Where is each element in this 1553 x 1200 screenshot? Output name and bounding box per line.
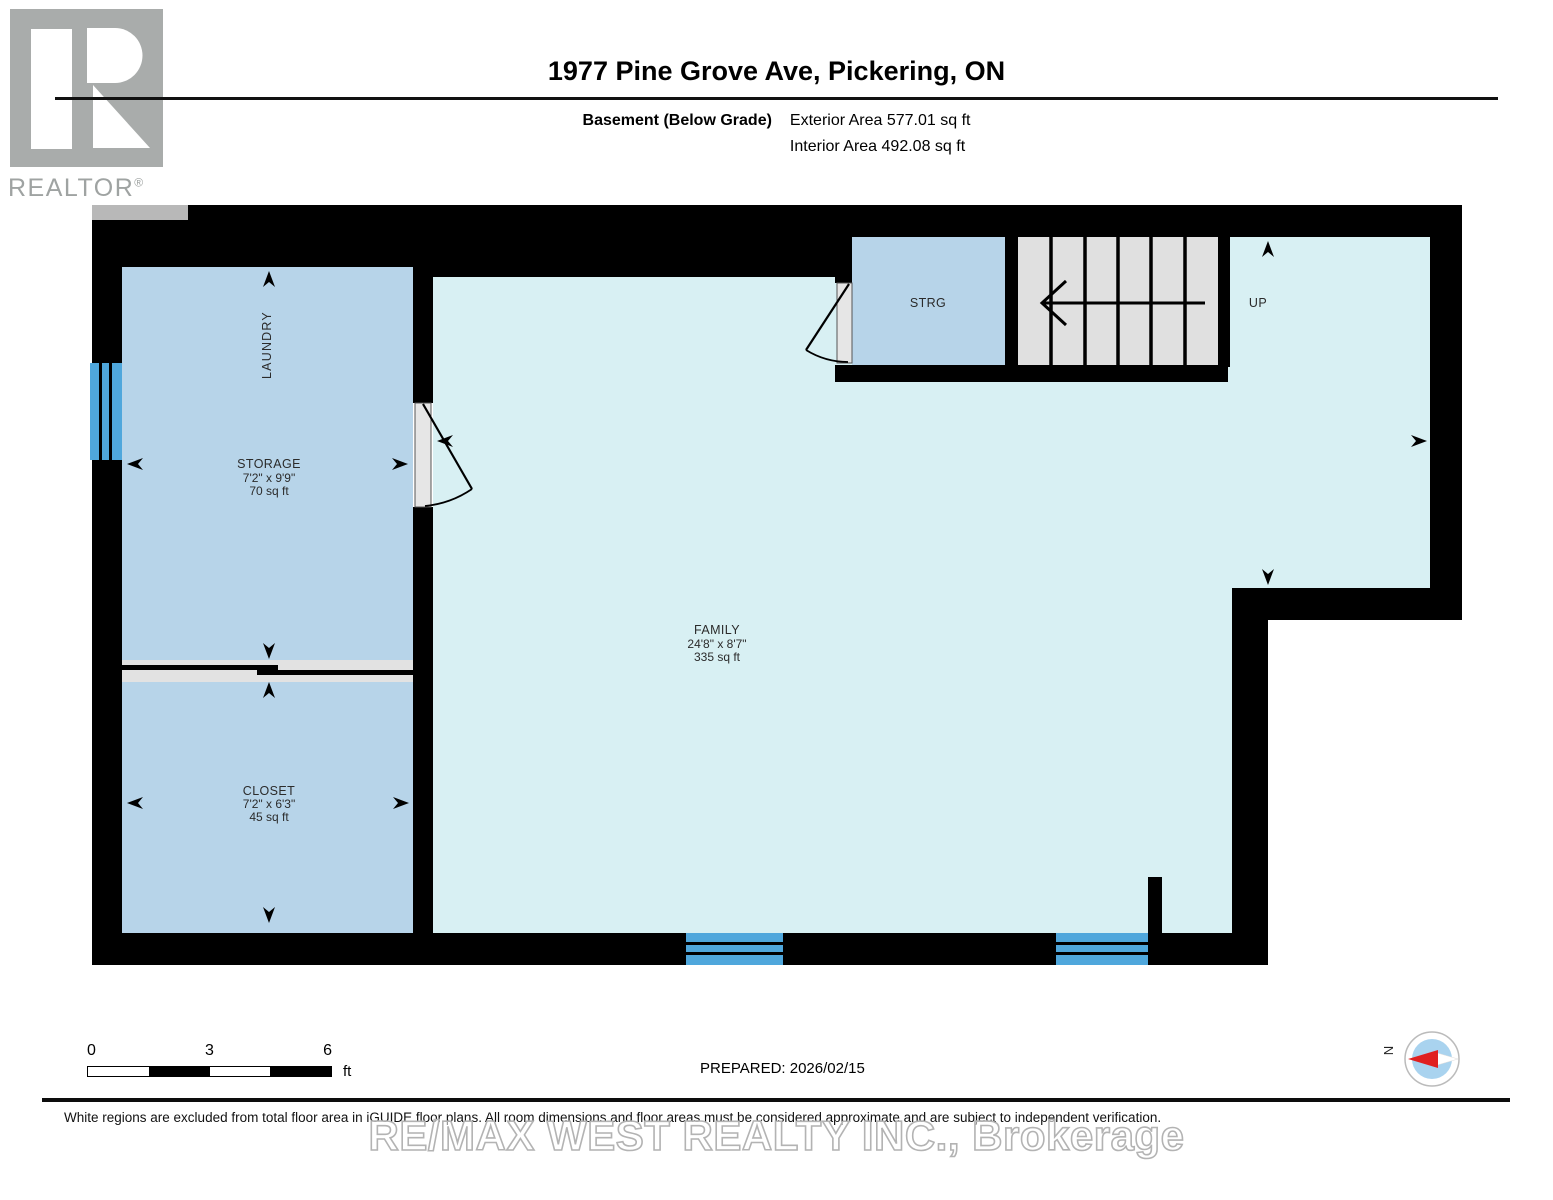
wall-right	[1430, 205, 1462, 620]
strg-room-label: STRG	[910, 296, 946, 310]
wall-inner-lower	[413, 507, 433, 933]
family-room-area: 335 sq ft	[694, 650, 741, 664]
wall-top-right	[850, 205, 1462, 237]
wall-stairs-left	[1005, 237, 1018, 367]
compass-icon	[1400, 1027, 1464, 1091]
floor-label: Basement (Below Grade)	[583, 108, 772, 160]
wall-step-vertical	[1232, 588, 1268, 965]
exterior-area-value: Exterior Area 577.01 sq ft	[790, 108, 971, 134]
family-room-label: FAMILY	[694, 623, 740, 637]
scale-tick-3: 3	[205, 1042, 214, 1060]
window-bottom-2	[1056, 933, 1148, 965]
brokerage-watermark: RE/MAX WEST REALTY INC., Brokerage	[0, 1112, 1553, 1160]
wall-inner-upper	[413, 267, 433, 403]
prepared-date: PREPARED: 2026/02/15	[700, 1060, 865, 1077]
laundry-room-label: LAUNDRY	[260, 311, 274, 379]
family-room-area-right	[1228, 237, 1430, 588]
closet-room-dimensions: 7'2" x 6'3"	[243, 797, 295, 811]
closet-room-area: 45 sq ft	[249, 810, 289, 824]
floor-summary: Basement (Below Grade) Exterior Area 577…	[0, 108, 1553, 160]
header-divider-line	[55, 97, 1498, 100]
wall-top-middle	[413, 205, 852, 277]
storage-room-dimensions: 7'2" x 9'9"	[243, 471, 295, 485]
scale-bar: 0 3 6 ft	[87, 1042, 332, 1077]
storage-room-area: 70 sq ft	[249, 484, 289, 498]
compass-north-label: N	[1381, 1046, 1396, 1055]
scale-tick-0: 0	[87, 1042, 96, 1060]
page-title: 1977 Pine Grove Ave, Pickering, ON	[0, 56, 1553, 87]
storage-room-label: STORAGE	[237, 457, 301, 471]
realtor-logo-wordmark: REALTOR®	[8, 174, 193, 203]
wall-stairs-right	[1218, 237, 1230, 367]
floorplan-page: LAUNDRY STORAGE 7'2" x 9'9" 70 sq ft CLO…	[0, 0, 1553, 1200]
scale-unit-label: ft	[343, 1063, 351, 1080]
floorplan-drawing: LAUNDRY STORAGE 7'2" x 9'9" 70 sq ft CLO…	[0, 0, 1553, 1200]
divider-door-left	[122, 665, 278, 670]
interior-area-value: Interior Area 492.08 sq ft	[790, 134, 971, 160]
scale-tick-6: 6	[323, 1042, 332, 1060]
wall-stairs-bottom	[835, 365, 1228, 382]
window-bottom-1	[686, 933, 783, 965]
wall-strg-left	[835, 237, 852, 283]
family-room-dimensions: 24'8" x 8'7"	[687, 637, 746, 651]
wall-left	[92, 205, 122, 965]
divider-door-right	[257, 670, 413, 675]
wall-stub	[1148, 877, 1162, 935]
closet-room-label: CLOSET	[243, 784, 295, 798]
scale-bar-segments	[87, 1066, 332, 1077]
footer-divider-line	[42, 1098, 1510, 1102]
stairs-up-label: UP	[1249, 296, 1267, 310]
window-left	[90, 363, 122, 460]
